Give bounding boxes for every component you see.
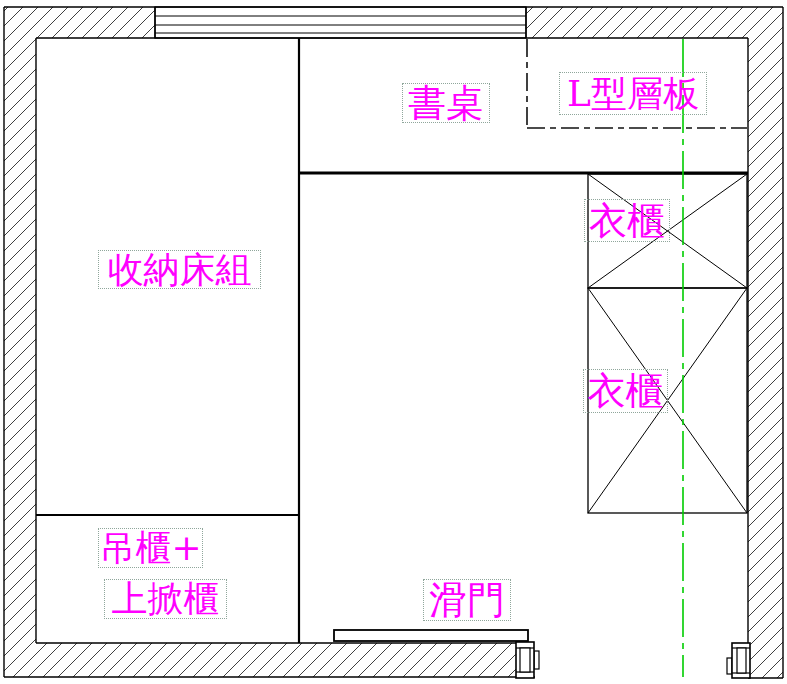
sliding-door-panel <box>334 630 528 641</box>
label-wardrobe-upper: 衣櫃 <box>584 199 670 242</box>
wall-hatch-top-right <box>526 7 783 38</box>
wall-hatch-top-left <box>4 7 155 38</box>
label-sliding-door: 滑門 <box>423 579 511 621</box>
floor-plan-canvas: 書桌 L型層板 收納床組 衣櫃 衣櫃 吊櫃+ 上掀櫃 滑門 <box>0 0 787 684</box>
label-storage-bed: 收納床組 <box>98 250 261 289</box>
label-wardrobe-lower: 衣櫃 <box>583 369 668 413</box>
wall-hatch-left <box>4 38 36 643</box>
wall-hatch-bottom-left <box>4 643 516 677</box>
label-liftup-cabinet: 上掀櫃 <box>104 579 227 619</box>
label-hanging-cabinet: 吊櫃+ <box>98 528 203 568</box>
wall-hatch-right <box>748 38 783 678</box>
window-stripe-band <box>155 7 526 38</box>
label-l-shaped-shelf: L型層板 <box>559 72 707 115</box>
label-desk: 書桌 <box>402 83 490 123</box>
